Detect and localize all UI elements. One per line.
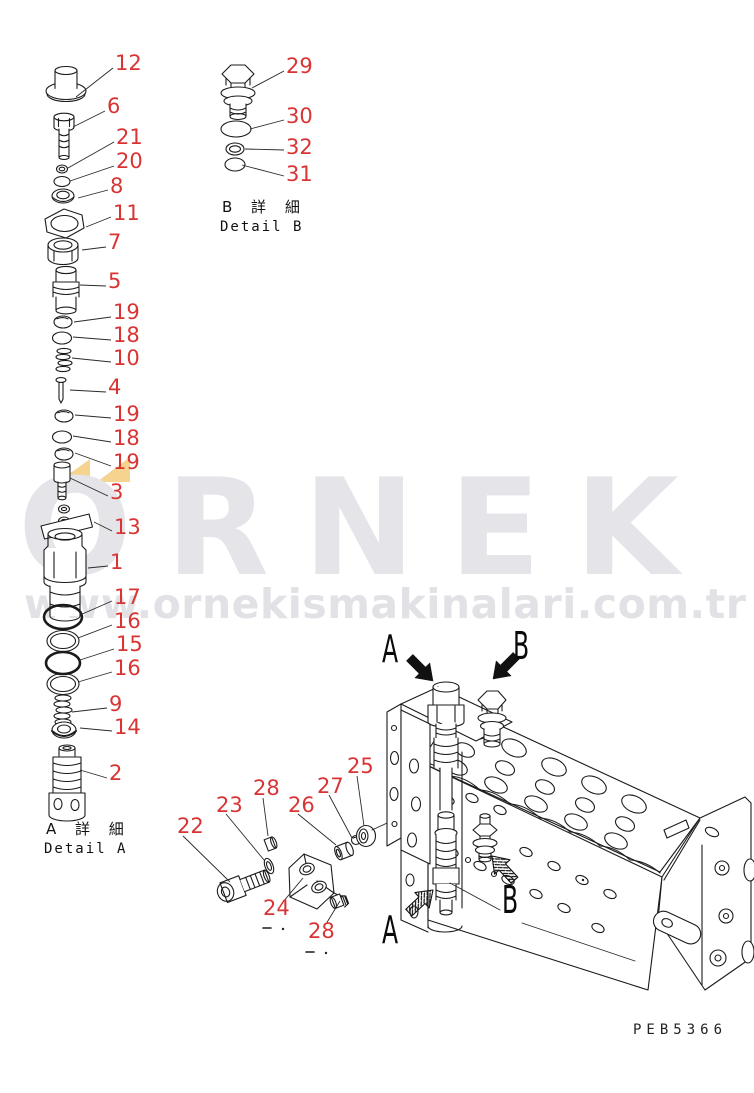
parts-diagram-page: ORNEK www.ornekismakinalari.com.tr — [0, 0, 754, 1093]
callout-number-2: 2 — [109, 763, 122, 784]
callout-number-25: 25 — [347, 756, 374, 777]
callout-number-10: 10 — [113, 348, 140, 369]
callout-number-22: 22 — [177, 816, 204, 837]
callout-number-18: 18 — [113, 325, 140, 346]
callout-number-16: 16 — [114, 611, 141, 632]
callout-number-31: 31 — [286, 164, 313, 185]
callout-number-28: 28 — [308, 921, 335, 942]
callout-number-6: 6 — [107, 96, 120, 117]
callout-number-15: 15 — [116, 634, 143, 655]
view-letter-b-top: B — [513, 627, 529, 665]
callout-number-19: 19 — [113, 452, 140, 473]
detail-a-label-en: Detail A — [44, 841, 127, 857]
callout-number-27: 27 — [317, 776, 344, 797]
callout-number-17: 17 — [114, 587, 141, 608]
callout-number-19: 19 — [113, 404, 140, 425]
callout-number-9: 9 — [109, 694, 122, 715]
callout-number-13: 13 — [114, 517, 141, 538]
detail-b-label-jp: B 詳 細 — [222, 196, 307, 217]
callout-number-26: 26 — [288, 795, 315, 816]
callout-number-8: 8 — [110, 176, 123, 197]
callout-number-23: 23 — [216, 795, 243, 816]
callout-number-20: 20 — [116, 151, 143, 172]
callout-number-12: 12 — [115, 53, 142, 74]
drawing-code: PEB5366 — [633, 1022, 727, 1038]
detail-b-label-en: Detail B — [220, 219, 303, 235]
callout-number-3: 3 — [110, 482, 123, 503]
view-letter-a-bottom: A — [382, 911, 398, 949]
callout-number-21: 21 — [116, 127, 143, 148]
callout-number-24: 24 — [263, 898, 290, 919]
callout-number-1: 1 — [110, 552, 123, 573]
callout-number-18: 18 — [113, 428, 140, 449]
callout-number-4: 4 — [108, 377, 121, 398]
callout-number-7: 7 — [108, 232, 121, 253]
view-letter-b-bottom: B — [502, 881, 518, 919]
callout-number-19: 19 — [113, 302, 140, 323]
detail-a-label-jp: A 詳 細 — [46, 818, 131, 839]
callout-number-29: 29 — [286, 56, 313, 77]
callout-number-32: 32 — [286, 137, 313, 158]
callout-number-5: 5 — [108, 271, 121, 292]
callout-number-11: 11 — [113, 203, 140, 224]
callout-number-30: 30 — [286, 106, 313, 127]
callout-number-28: 28 — [253, 778, 280, 799]
callout-number-16: 16 — [114, 658, 141, 679]
view-letter-a-top: A — [382, 630, 398, 668]
callout-number-14: 14 — [114, 717, 141, 738]
